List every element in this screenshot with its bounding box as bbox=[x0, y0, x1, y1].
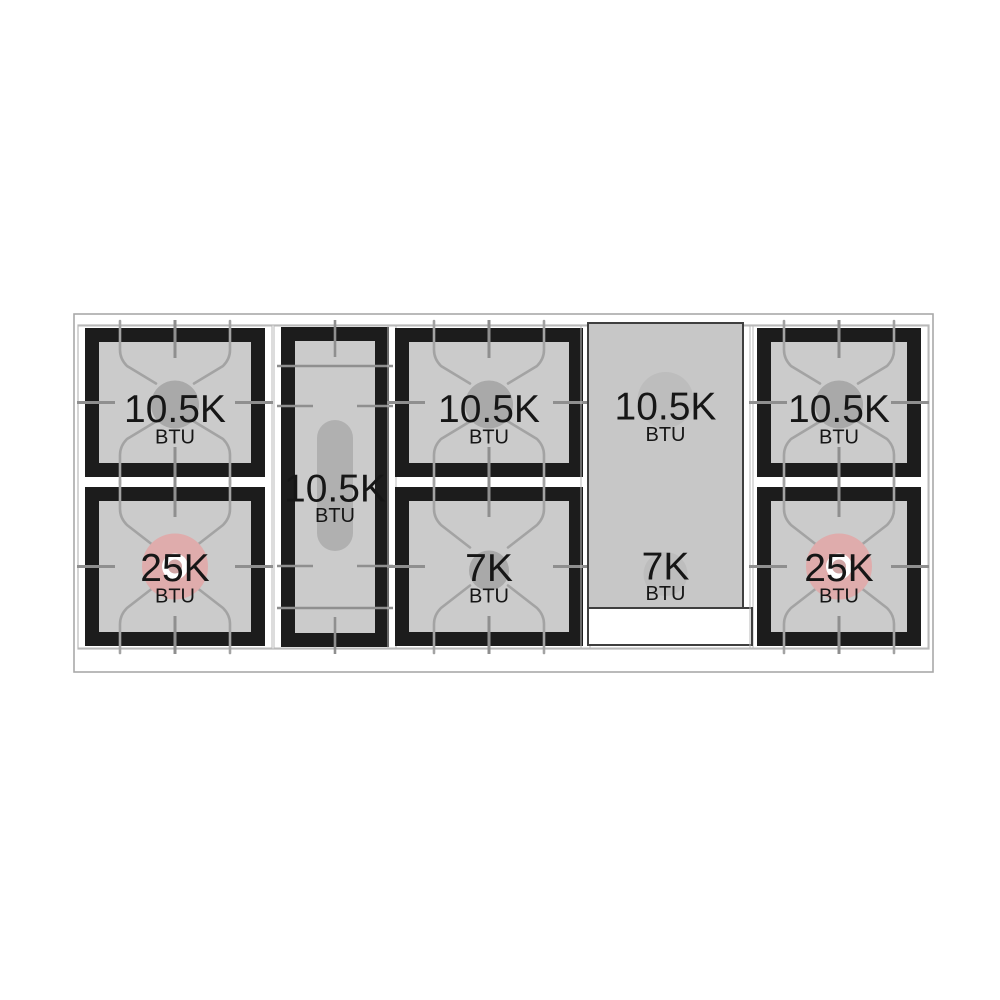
burner-unit-label: BTU bbox=[469, 427, 509, 449]
burner-unit-label: BTU bbox=[646, 424, 686, 446]
burner-power-label: 10.5K bbox=[438, 388, 540, 431]
section-middle-pair: 10.5KBTU7KBTU bbox=[387, 320, 591, 654]
burner-unit-label: BTU bbox=[646, 583, 686, 605]
griddle-front-trim bbox=[588, 608, 752, 645]
section-right-pair: 10.5KBTU25KBTU bbox=[749, 320, 929, 654]
burner-power-label: 25K bbox=[140, 547, 209, 590]
section-left-pair: 10.5KBTU25KBTU bbox=[77, 320, 273, 654]
burner-unit-label: BTU bbox=[819, 427, 859, 449]
section-griddle: 10.5KBTU7KBTU bbox=[581, 323, 753, 648]
burner-unit-label: BTU bbox=[819, 586, 859, 608]
burner-power-label: 10.5K bbox=[124, 388, 226, 431]
burner-power-label: 25K bbox=[804, 547, 873, 590]
burner-unit-label: BTU bbox=[155, 586, 195, 608]
burner-power-label: 10.5K bbox=[615, 386, 717, 429]
burner-unit-label: BTU bbox=[315, 505, 355, 527]
burner-power-label: 7K bbox=[465, 547, 513, 590]
section-center-oval: 10.5KBTU bbox=[274, 320, 396, 654]
burner-unit-label: BTU bbox=[469, 586, 509, 608]
burner-power-label: 10.5K bbox=[788, 388, 890, 431]
burner-unit-label: BTU bbox=[155, 427, 195, 449]
cooktop-diagram-page: 10.5KBTU25KBTU10.5KBTU10.5KBTU7KBTU10.5K… bbox=[0, 0, 1000, 1000]
cooktop-diagram-svg: 10.5KBTU25KBTU10.5KBTU10.5KBTU7KBTU10.5K… bbox=[0, 0, 1000, 1000]
